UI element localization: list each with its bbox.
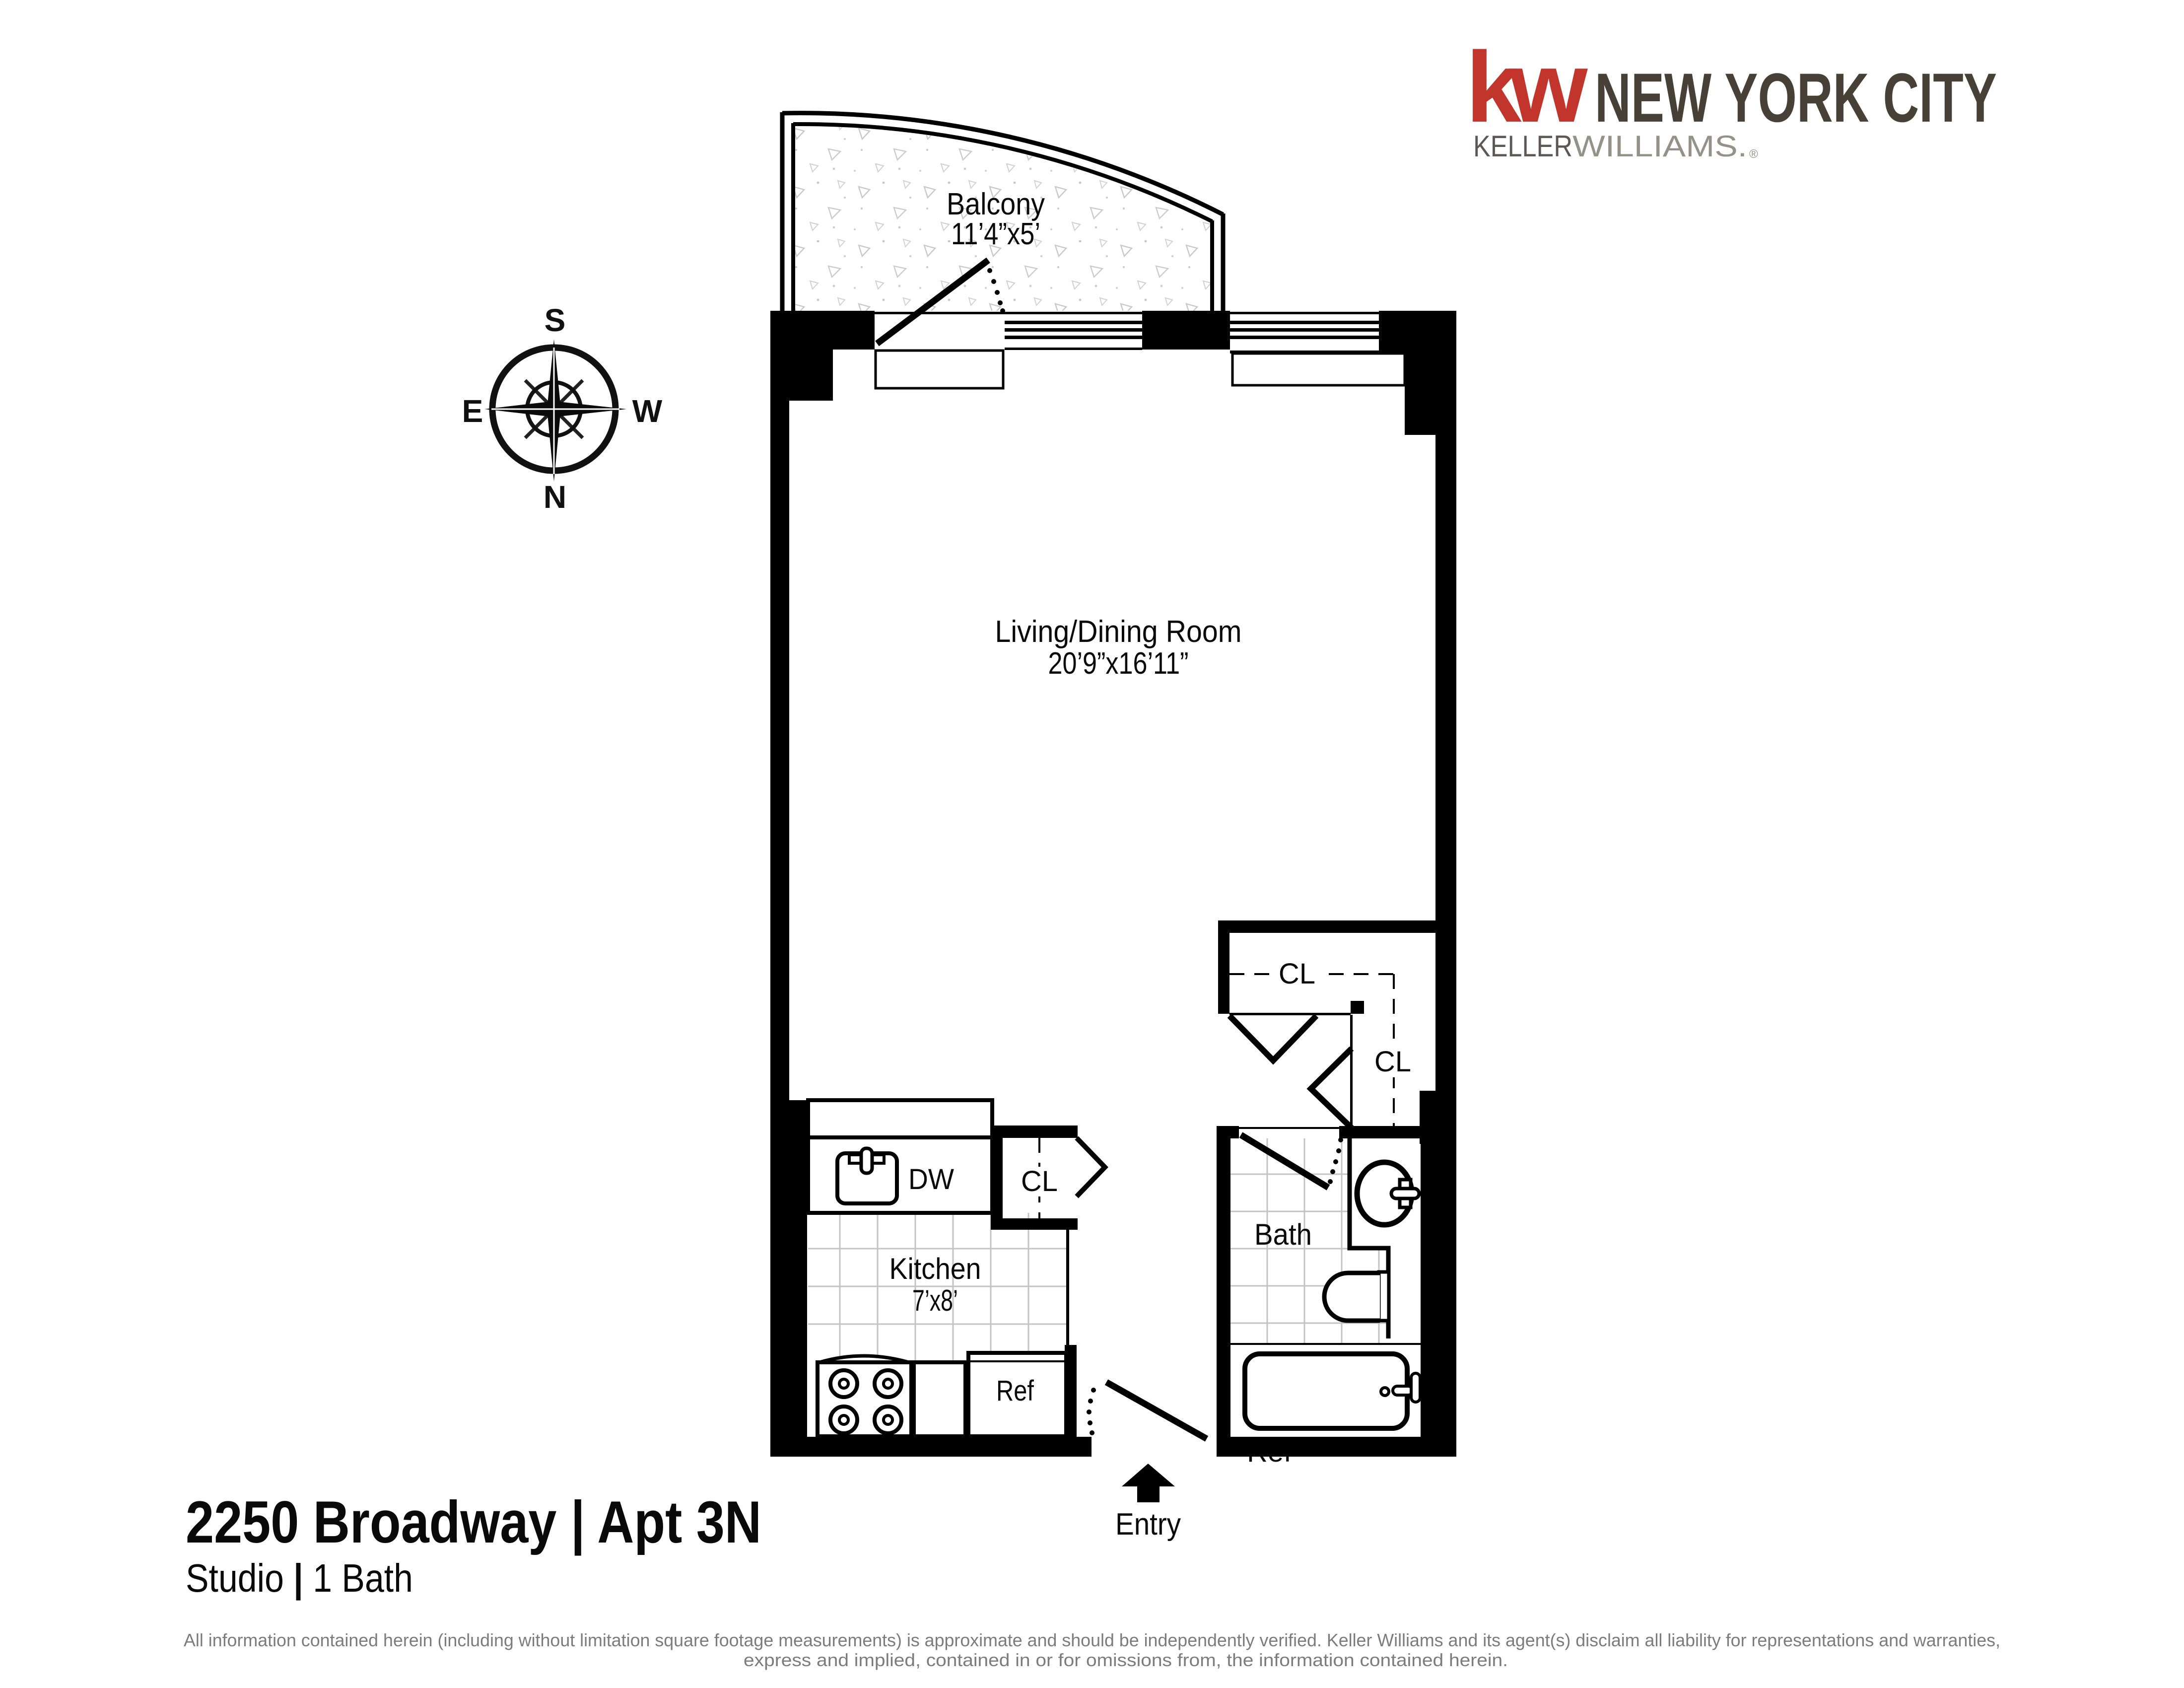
svg-text:DW: DW	[908, 1163, 954, 1196]
svg-text:S: S	[545, 302, 566, 338]
svg-text:E: E	[462, 393, 483, 429]
svg-text:N: N	[544, 479, 566, 515]
svg-text:CL: CL	[1279, 958, 1315, 990]
svg-text:Kitchen: Kitchen	[889, 1252, 981, 1285]
svg-text:7’x8’: 7’x8’	[912, 1284, 958, 1317]
svg-text:KELLER: KELLER	[1473, 130, 1572, 163]
svg-text:express and implied, contained: express and implied, contained in or for…	[744, 1650, 1508, 1670]
svg-text:20’9”x16’11”: 20’9”x16’11”	[1048, 646, 1189, 681]
svg-text:CL: CL	[1374, 1046, 1411, 1078]
svg-text:Studio | 1 Bath: Studio | 1 Bath	[186, 1556, 413, 1601]
svg-text:2250 Broadway | Apt 3N: 2250 Broadway | Apt 3N	[186, 1489, 761, 1556]
svg-text:Ref: Ref	[996, 1375, 1034, 1407]
svg-text:NEW YORK CITY: NEW YORK CITY	[1595, 59, 1997, 137]
svg-text:WILLIAMS.: WILLIAMS.	[1572, 130, 1747, 163]
svg-text:kw: kw	[1466, 31, 1588, 143]
svg-text:CL: CL	[1021, 1165, 1058, 1197]
svg-text:All information contained here: All information contained herein (includ…	[184, 1630, 2000, 1650]
svg-text:®: ®	[1749, 147, 1758, 161]
svg-text:Bath: Bath	[1254, 1218, 1312, 1251]
svg-text:W: W	[632, 393, 663, 429]
svg-text:Living/Dining Room: Living/Dining Room	[995, 615, 1242, 649]
svg-text:Balcony: Balcony	[947, 187, 1045, 221]
svg-text:Entry: Entry	[1115, 1507, 1181, 1542]
svg-text:11’4”x5’: 11’4”x5’	[951, 217, 1040, 251]
